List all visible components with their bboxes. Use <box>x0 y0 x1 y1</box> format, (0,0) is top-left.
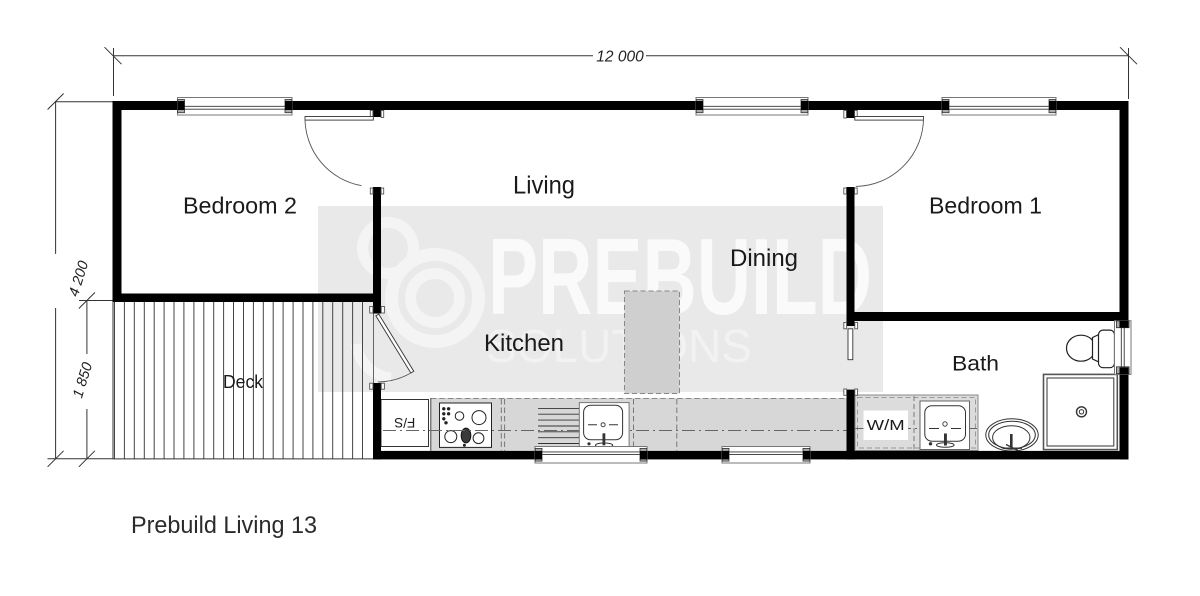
svg-text:Dining: Dining <box>730 245 798 272</box>
svg-text:F/S: F/S <box>394 415 415 430</box>
svg-text:Prebuild Living 13: Prebuild Living 13 <box>131 512 317 539</box>
svg-text:Bedroom 2: Bedroom 2 <box>183 193 297 219</box>
svg-text:Living: Living <box>513 172 575 200</box>
svg-text:W/M: W/M <box>867 418 905 434</box>
svg-text:Bedroom 1: Bedroom 1 <box>929 193 1042 219</box>
svg-text:Kitchen: Kitchen <box>484 330 564 357</box>
svg-text:Bath: Bath <box>952 353 999 376</box>
svg-text:Deck: Deck <box>223 371 264 392</box>
svg-text:12 000: 12 000 <box>596 49 644 66</box>
